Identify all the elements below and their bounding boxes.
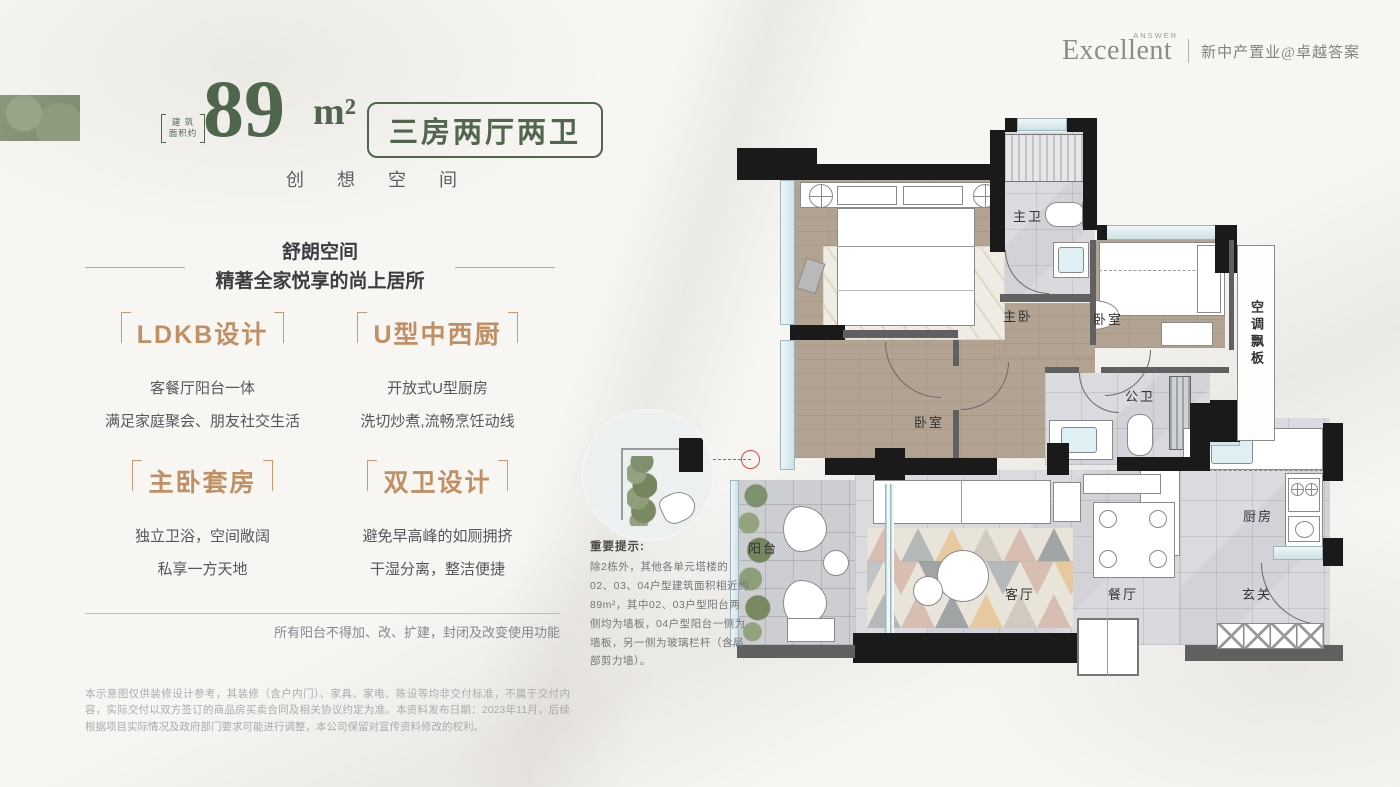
coffee-table [937,550,989,602]
sofa-cushion-line [961,480,962,524]
oven-knob [1295,521,1314,538]
wall [1083,118,1097,230]
feature-desc1: 开放式U型厨房 [320,372,555,405]
room-label-master-bath: 主卫 [998,206,1058,225]
burner-icon [1291,483,1304,496]
feature-desc2: 满足家庭聚会、朋友社交生活 [85,405,320,438]
balcony-table [823,550,849,576]
window-bedroom-right [1105,225,1221,240]
toilet [1127,414,1153,456]
room-label-public-bath: 公卫 [1110,386,1170,405]
wall [1005,118,1017,132]
feature-title: 主卧套房 [132,458,272,504]
feature-ldkb: LDKB设计 客餐厅阳台一体 满足家庭聚会、朋友社交生活 [85,310,320,438]
feature-suite: 主卧套房 独立卫浴，空间敞阔 私享一方天地 [85,458,320,586]
wall [815,164,1005,180]
brand-sub: ANSWER [1133,31,1178,40]
feature-desc2: 私享一方天地 [85,553,320,586]
room-label-bedroom-right: 卧室 [1078,309,1138,328]
wall [1090,240,1096,345]
intro-block: 舒朗空间 精著全家悦享的尚上居所 [85,238,555,297]
room-label-bedroom-left: 卧室 [899,412,959,431]
window-bedroom-left [780,340,795,470]
feature-title: 双卫设计 [367,458,507,504]
wall [1000,294,1095,302]
feature-title: LDKB设计 [121,310,284,356]
logo-divider [1188,39,1189,63]
wall [790,325,845,340]
callout-plants [627,456,657,526]
wall [1045,367,1079,373]
balcony-glass-door [885,484,894,636]
area-label: 建 筑 面积约 [161,114,205,143]
disclaimer: 本示意图仅供装修设计参考，其装修（含户内门）、家具、家电、陈设等均非交付标准，不… [85,686,570,735]
dining-chair [1149,510,1167,528]
wall [1097,225,1107,240]
feature-desc2: 洗切炒煮,流畅烹饪动线 [320,405,555,438]
intro-line1: 舒朗空间 [85,238,555,267]
pillow [903,186,963,205]
callout-wall-block [679,438,703,472]
sink-basin [1058,247,1084,273]
master-bed [837,208,975,326]
window-master-bath [1017,118,1067,131]
feature-bathrooms: 双卫设计 避免早高峰的如厕拥挤 干湿分离，整洁便捷 [320,458,555,586]
bed-blanket-line [837,290,975,291]
floorplan: 空调飘板 重要提示: 除2栋外，其他各单元塔楼的02、03、04户型建筑面积相近… [585,118,1360,680]
brand-logo: Excellent ANSWER 新中产置业@卓越答案 [1062,34,1360,68]
feature-desc2: 干湿分离，整洁便捷 [320,553,555,586]
slogan: 创 想 空 间 [286,166,471,192]
important-note: 重要提示: 除2栋外，其他各单元塔楼的02、03、04户型建筑面积相近约89m²… [590,538,750,671]
wall [1229,240,1234,350]
sideboard [1083,474,1161,494]
ac-unit-box [1077,618,1139,676]
note-body: 除2栋外，其他各单元塔楼的02、03、04户型建筑面积相近约89m²，其中02、… [590,558,750,671]
layout-badge: 三房两厅两卫 [367,102,603,158]
detail-callout-circle [583,410,713,540]
wall [1101,367,1229,373]
wall [825,458,997,475]
room-label-living: 客厅 [990,584,1050,603]
balcony-planter [787,618,835,642]
wall [1323,423,1343,481]
sofa [873,480,1051,524]
wall [990,130,1005,252]
window-kitchen-side [1273,546,1323,560]
wall [1190,403,1210,465]
room-label-master-bed: 主卧 [988,306,1048,325]
room-label-foyer: 玄关 [1227,584,1287,603]
burner-icon [1305,483,1318,496]
room-label-dining: 餐厅 [1093,584,1153,603]
window-master [780,180,795,325]
intro-line-left [85,267,185,268]
nightstand [1161,322,1213,346]
room-label-balcony: 阳台 [733,538,793,557]
wall [843,330,958,338]
red-circle-marker [741,450,760,469]
dining-chair [1149,550,1167,568]
feature-desc1: 客餐厅阳台一体 [85,372,320,405]
sofa-side-table [1053,482,1081,522]
coffee-table-small [913,576,943,606]
balcony-note: 所有阳台不得加、改、扩建，封闭及改变使用功能 [85,622,560,641]
divider-line [85,613,560,614]
room-label-kitchen: 厨房 [1228,506,1288,525]
dining-chair [1099,550,1117,568]
wall [1210,400,1240,442]
area-value: 89 [203,68,285,150]
room-label-ac-panel: 空调飘板 [1247,300,1266,368]
note-title: 重要提示: [590,538,750,554]
ac-unit-line [1107,618,1108,676]
poster: 建 筑 面积约 89 m² 三房两厅两卫 创 想 空 间 舒朗空间 精著全家悦享… [0,0,1400,787]
wall [1323,538,1343,566]
wall [953,340,959,366]
area-unit: m² [313,90,356,134]
intro-line2: 精著全家悦享的尚上居所 [85,267,555,296]
pillow [837,186,897,205]
shower-area [1003,134,1091,182]
decor-green-image [0,95,80,141]
brand-tagline: 新中产置业@卓越答案 [1201,41,1360,62]
wall [853,633,1078,663]
entry-mat [1217,623,1324,649]
wall [1047,443,1069,475]
feature-desc1: 避免早高峰的如厕拥挤 [320,520,555,553]
feature-kitchen: U型中西厨 开放式U型厨房 洗切炒煮,流畅烹饪动线 [320,310,555,438]
feature-title: U型中西厨 [357,310,517,356]
dining-chair [1099,510,1117,528]
wall [737,645,855,658]
ceiling-fan-icon [809,184,833,208]
feature-desc1: 独立卫浴，空间敞阔 [85,520,320,553]
intro-line-right [455,267,555,268]
stove [1288,478,1320,512]
wall [737,148,817,180]
hero-area: 建 筑 面积约 89 m² 三房两厅两卫 [155,80,575,170]
bed-blanket-line [837,246,975,247]
